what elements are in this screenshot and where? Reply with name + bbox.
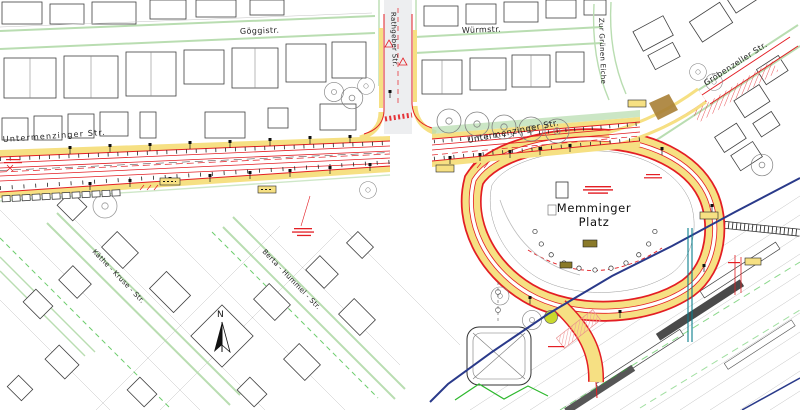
tree-icon xyxy=(358,78,375,95)
label-memminger-platz-line2: Platz xyxy=(579,215,610,229)
label-memminger-platz-line1: Memminger xyxy=(557,201,631,215)
tree-icon xyxy=(93,194,117,218)
label-zur-gruenen-eiche: Zur Grünen Eiche xyxy=(597,18,607,84)
southwest-blocks xyxy=(0,191,460,410)
tree-icon xyxy=(751,154,773,176)
tree-icon xyxy=(324,82,343,101)
tree-icon xyxy=(360,182,377,199)
label-wuermstr: Würmstr. xyxy=(462,25,502,35)
label-goeggistr: Göggistr. xyxy=(240,26,280,36)
site-plan: N xyxy=(0,0,800,410)
street-wuermstr xyxy=(415,27,602,53)
tree-icon xyxy=(491,287,509,305)
site-plan-drawing: N xyxy=(0,0,800,410)
north-arrow-label: N xyxy=(217,310,224,320)
